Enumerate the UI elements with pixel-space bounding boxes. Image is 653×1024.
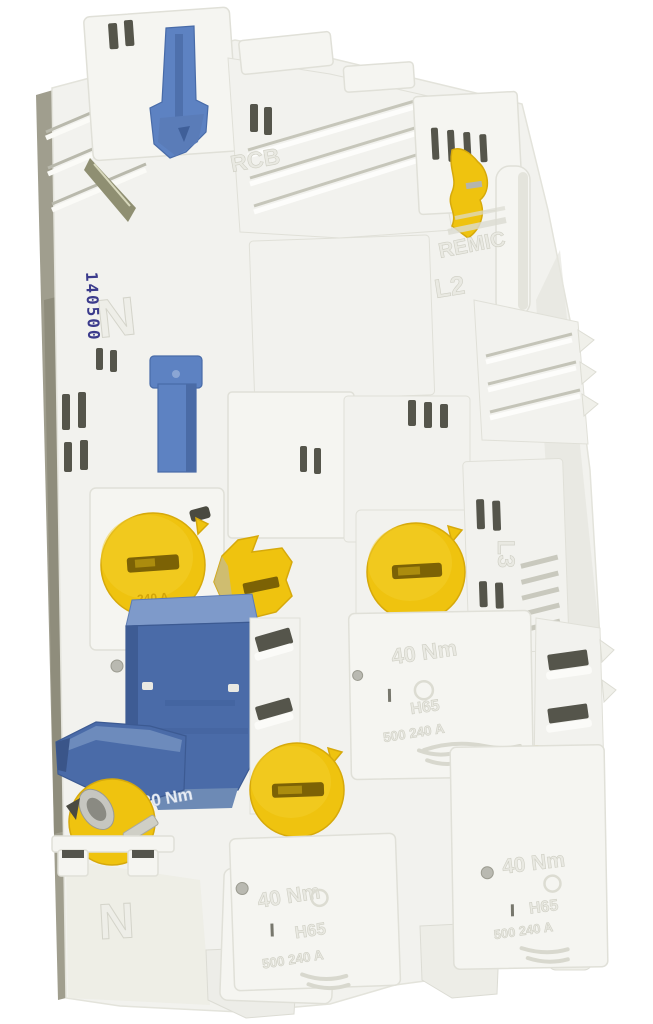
vent-slot xyxy=(96,348,103,370)
vent-slot xyxy=(250,104,258,132)
fuse-cover-bottom-center: 40 Nm H65 500 240 A xyxy=(229,833,400,991)
emboss-phase-l3: L3 xyxy=(492,540,519,568)
vent-slot xyxy=(314,448,321,474)
emboss-neutral-bottom: N xyxy=(97,892,136,950)
lever-rivet xyxy=(172,370,180,378)
serrated-tooth xyxy=(580,362,596,384)
vent-slot xyxy=(424,402,432,428)
emboss-phase-l2: L2 xyxy=(432,270,467,304)
cover-pin xyxy=(236,882,248,894)
louver-block-right-upper xyxy=(474,300,598,444)
vent-slot xyxy=(479,134,487,162)
vent-slot xyxy=(476,499,485,529)
fuse-cover-bottom-right: 40 Nm H65 500 240 A xyxy=(450,745,608,970)
vent-slot xyxy=(64,442,72,472)
photo-canvas: N 140500 RCB REMIC L2 xyxy=(0,0,653,1024)
cover-code-text: H65 xyxy=(528,897,559,917)
cover-tick xyxy=(270,923,273,936)
vent-slot xyxy=(80,440,88,470)
serrated-tooth xyxy=(578,330,594,352)
blue-lever-top-ridge xyxy=(175,34,183,126)
vent-slot xyxy=(479,581,488,607)
panel-mid-big xyxy=(249,235,434,401)
yellow-cap-bottom-center xyxy=(250,743,344,837)
cover-tab xyxy=(343,62,415,93)
screw-dot xyxy=(111,660,123,672)
vent-slot xyxy=(495,582,504,608)
vent-slot xyxy=(110,350,117,372)
cover-tick xyxy=(388,689,391,702)
serrated-tooth xyxy=(582,394,598,416)
vent-slot xyxy=(108,23,119,50)
blue-lever-mid xyxy=(150,356,202,472)
serrated-tooth xyxy=(600,640,614,662)
vent-slot xyxy=(124,20,135,47)
vent-slot xyxy=(300,446,307,472)
blue-block-clip xyxy=(228,684,239,692)
vent-slot xyxy=(78,392,86,428)
fuse-box-photo: N 140500 RCB REMIC L2 xyxy=(0,0,653,1024)
vent-slot xyxy=(62,394,70,430)
cover-pin xyxy=(481,867,493,879)
vent-slot xyxy=(408,400,416,426)
cover-mid-center xyxy=(228,392,354,538)
blue-block-clip xyxy=(142,682,153,690)
vent-slot xyxy=(492,501,501,531)
cover-pin xyxy=(353,670,363,680)
cover-tick xyxy=(511,904,514,916)
serial-stamp-text: 140500 xyxy=(82,271,103,341)
vent-slot xyxy=(264,107,272,135)
vent-slot xyxy=(440,404,448,428)
yellow-cap-mid-right xyxy=(367,523,465,621)
serrated-tooth xyxy=(602,680,616,702)
